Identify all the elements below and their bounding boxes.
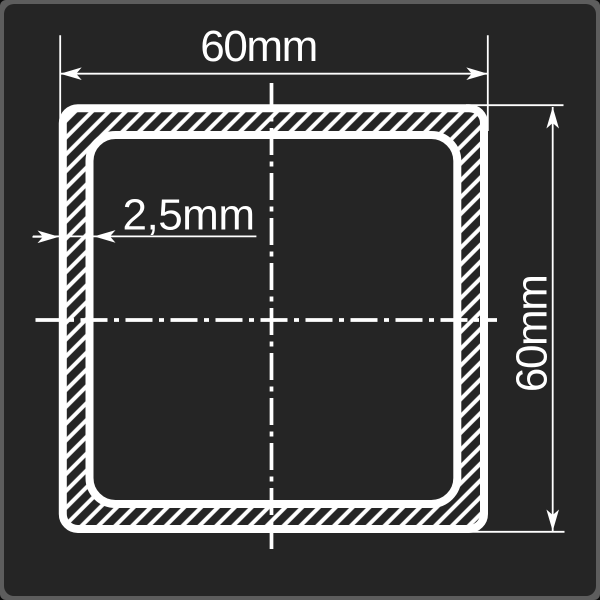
svg-text:60mm: 60mm xyxy=(508,275,557,392)
svg-text:2,5mm: 2,5mm xyxy=(123,191,255,240)
svg-text:60mm: 60mm xyxy=(200,22,317,71)
